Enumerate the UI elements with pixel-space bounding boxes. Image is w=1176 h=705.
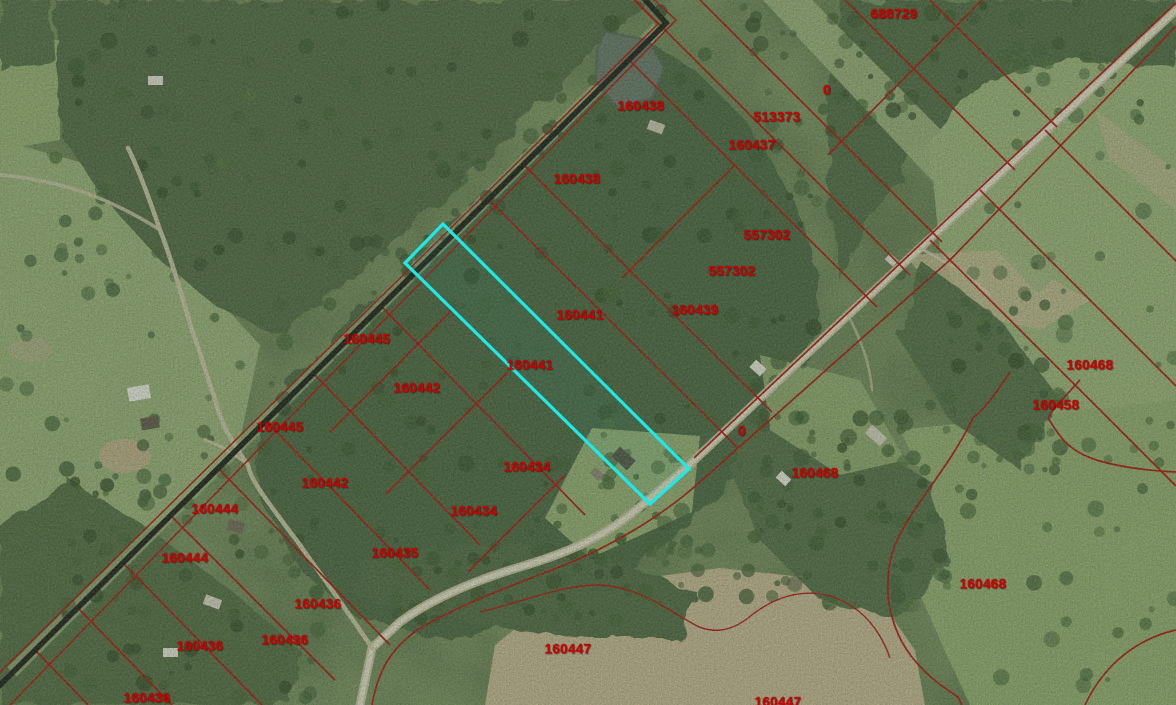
noise-light xyxy=(0,0,1176,705)
aerial-imagery xyxy=(0,0,1176,705)
map-viewport[interactable]: 6887290160438513373160437160438557302557… xyxy=(0,0,1176,705)
